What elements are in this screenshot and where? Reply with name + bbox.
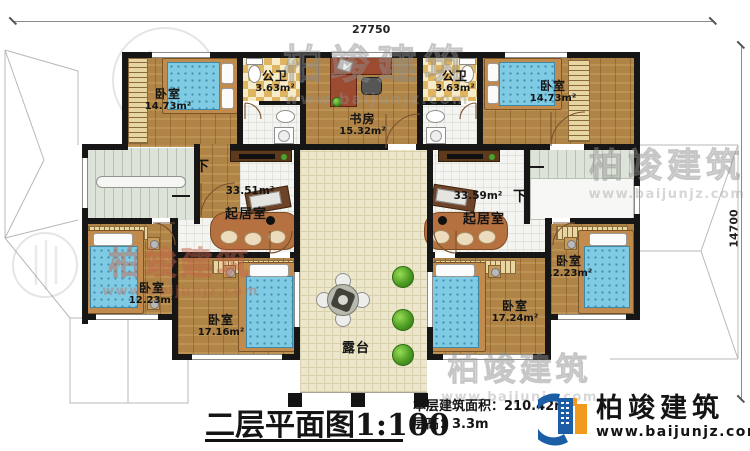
company-name: 柏竣建筑: [596, 395, 750, 422]
bed-tr-pillow: [487, 85, 499, 104]
stairs-right-down-label: 下: [510, 190, 530, 206]
study-plant: [332, 97, 342, 107]
washer-left: [274, 127, 294, 144]
wall: [545, 218, 551, 360]
toilet-left: [246, 58, 263, 65]
tv-icon: [239, 154, 275, 159]
washer-right: [426, 127, 446, 144]
door-gap: [550, 144, 584, 150]
plant-icon: [281, 154, 287, 160]
door-gap: [152, 218, 170, 224]
sofa-cushion: [244, 232, 262, 246]
room-label-bedroom-bml: 卧室 17.16m²: [191, 314, 251, 339]
company-logo-icon: [538, 390, 594, 446]
window: [82, 158, 88, 208]
study-chair: [361, 77, 382, 95]
nightstand: [564, 237, 577, 250]
area-label-living-left: 33.51m²: [222, 186, 278, 198]
sofa-cushion: [456, 232, 474, 246]
room-label-bedroom-tl: 卧室 14.73m²: [138, 88, 198, 113]
bed-bmr-mattress: [432, 276, 479, 348]
area-label-living-right: 33.59m²: [450, 191, 506, 203]
stairs-left-railing: [96, 176, 186, 188]
window: [332, 52, 392, 58]
title-underline: [205, 439, 403, 442]
door-gap: [461, 101, 477, 105]
bed-br-pillow: [589, 233, 627, 246]
room-label-study: 书房 15.32m²: [325, 113, 400, 138]
room-label-living-right: 起居室: [452, 213, 516, 228]
company-logo-text: 柏竣建筑 www.baijunjz.com: [596, 395, 750, 439]
door-gap: [388, 144, 416, 150]
sofa-side-table: [438, 216, 447, 225]
terrace-plant: [392, 266, 414, 288]
room-label-bedroom-bmr: 卧室 17.24m²: [485, 300, 545, 325]
room-label-bath-right: 公卫 3.63m²: [426, 70, 484, 95]
window: [96, 314, 158, 320]
stairs-left-down-label: 下: [192, 160, 212, 176]
window: [505, 52, 567, 58]
nightstand: [223, 265, 236, 278]
window: [294, 272, 300, 327]
terrace-plant: [392, 309, 414, 331]
tv-icon: [447, 154, 483, 159]
toilet-right: [459, 58, 476, 65]
door-gap: [435, 252, 455, 258]
stairs-left-direction-arrow: [172, 195, 190, 197]
bed-bml-mattress: [246, 276, 293, 348]
stairs-right-direction-arrow: [528, 166, 544, 168]
room-label-bedroom-tr: 卧室 14.73m²: [521, 80, 585, 105]
plan-title-text: 二层平面图: [205, 408, 355, 443]
door-gap: [270, 252, 290, 258]
window: [443, 354, 533, 360]
sink-left: [276, 110, 295, 123]
window: [558, 314, 626, 320]
tv-cabinet-right: [438, 150, 500, 162]
top-dimension-line: [12, 21, 713, 22]
bed-bml-pillow: [249, 264, 289, 277]
plant-icon: [489, 154, 495, 160]
right-dimension-label: 14700: [728, 204, 741, 254]
sofa-cushion: [478, 230, 496, 244]
bed-tr-pillow: [487, 63, 499, 82]
bed-tl-pillow: [221, 88, 234, 109]
window: [192, 354, 282, 360]
tv-cabinet-left: [230, 150, 292, 162]
door-gap: [552, 218, 570, 224]
floor-plan-canvas: 27750 14700: [0, 0, 750, 451]
stairs-right: [530, 146, 634, 178]
room-label-bath-left: 公卫 3.63m²: [246, 70, 304, 95]
sofa-cushion: [268, 230, 286, 244]
window: [152, 52, 210, 58]
nightstand: [488, 265, 501, 278]
door-gap: [243, 101, 259, 105]
terrace-table-center: [338, 295, 348, 305]
stairs-right-landing: [530, 178, 634, 220]
room-label-living-left: 起居室: [214, 208, 278, 223]
nightstand: [147, 237, 160, 250]
wall: [82, 144, 128, 150]
window: [634, 186, 640, 214]
top-dimension-label: 27750: [352, 23, 390, 36]
right-dimension-line: [741, 45, 742, 400]
bed-bmr-pillow: [435, 264, 475, 277]
sofa-cushion: [220, 230, 238, 244]
window: [427, 272, 433, 327]
company-website: www.baijunjz.com: [596, 425, 750, 439]
terrace-plant: [392, 344, 414, 366]
bed-bl-pillow: [93, 233, 133, 246]
room-label-bedroom-br: 卧室 12.23m²: [539, 255, 599, 280]
wall: [122, 52, 128, 150]
sofa-cushion: [432, 230, 450, 244]
room-label-terrace: 露台: [332, 342, 380, 357]
sink-right: [426, 110, 445, 123]
wall: [524, 144, 530, 224]
bed-tl-pillow: [221, 63, 234, 84]
room-label-bedroom-bl: 卧室 12.23m²: [122, 282, 182, 307]
wall: [194, 144, 200, 224]
